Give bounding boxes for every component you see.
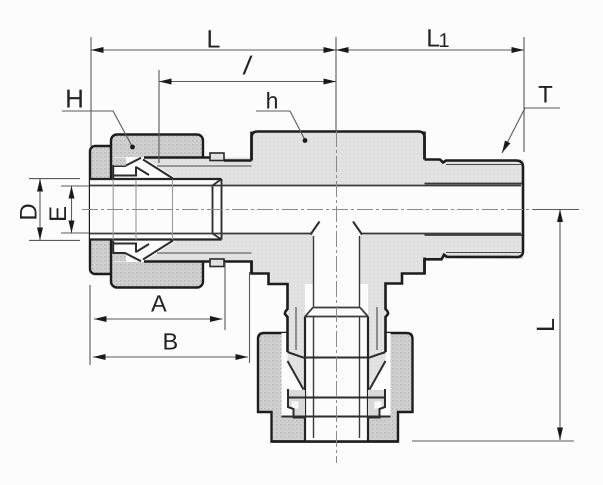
svg-text:H: H — [65, 84, 84, 114]
svg-text:L: L — [532, 318, 560, 332]
svg-text:h: h — [266, 88, 279, 114]
svg-text:A: A — [151, 291, 167, 317]
svg-text:L: L — [206, 26, 220, 54]
svg-text:T: T — [538, 82, 553, 109]
svg-text:D: D — [16, 203, 43, 220]
svg-text:1: 1 — [439, 30, 450, 52]
svg-text:B: B — [163, 329, 179, 355]
svg-text:E: E — [45, 206, 72, 222]
